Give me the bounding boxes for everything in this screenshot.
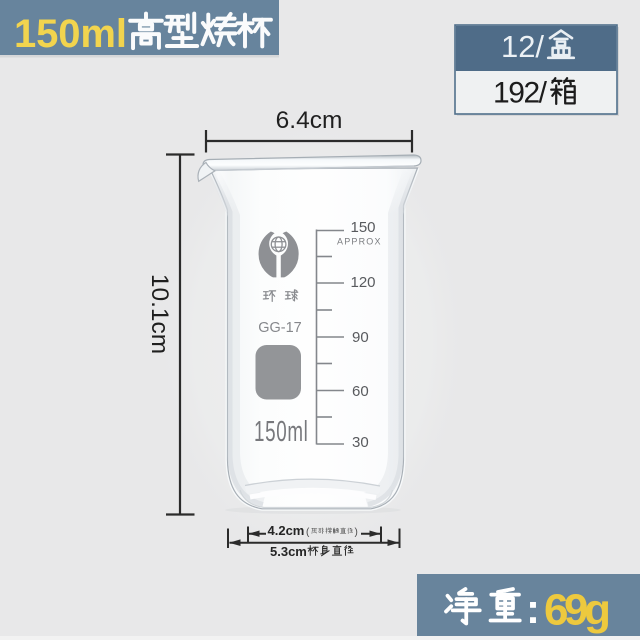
svg-text:5.3cm: 5.3cm <box>270 544 307 559</box>
svg-text:GG-17: GG-17 <box>258 320 302 336</box>
svg-text:6.4cm: 6.4cm <box>276 107 343 134</box>
svg-text:): ) <box>355 527 358 538</box>
svg-text:60: 60 <box>352 383 369 400</box>
svg-text:120: 120 <box>351 274 376 291</box>
svg-text:192/: 192/ <box>493 77 548 110</box>
svg-text:150ml: 150ml <box>14 12 127 56</box>
svg-text:150: 150 <box>351 219 376 236</box>
svg-text:10.1cm: 10.1cm <box>146 274 173 354</box>
svg-text:30: 30 <box>352 434 369 451</box>
svg-text:69g: 69g <box>544 586 611 635</box>
svg-text:4.2cm: 4.2cm <box>268 523 305 538</box>
svg-text::: : <box>526 585 540 632</box>
svg-text:APPROX: APPROX <box>337 237 382 247</box>
svg-text:12/: 12/ <box>501 29 544 64</box>
svg-text:150ml: 150ml <box>254 416 308 448</box>
svg-text:90: 90 <box>352 329 369 346</box>
